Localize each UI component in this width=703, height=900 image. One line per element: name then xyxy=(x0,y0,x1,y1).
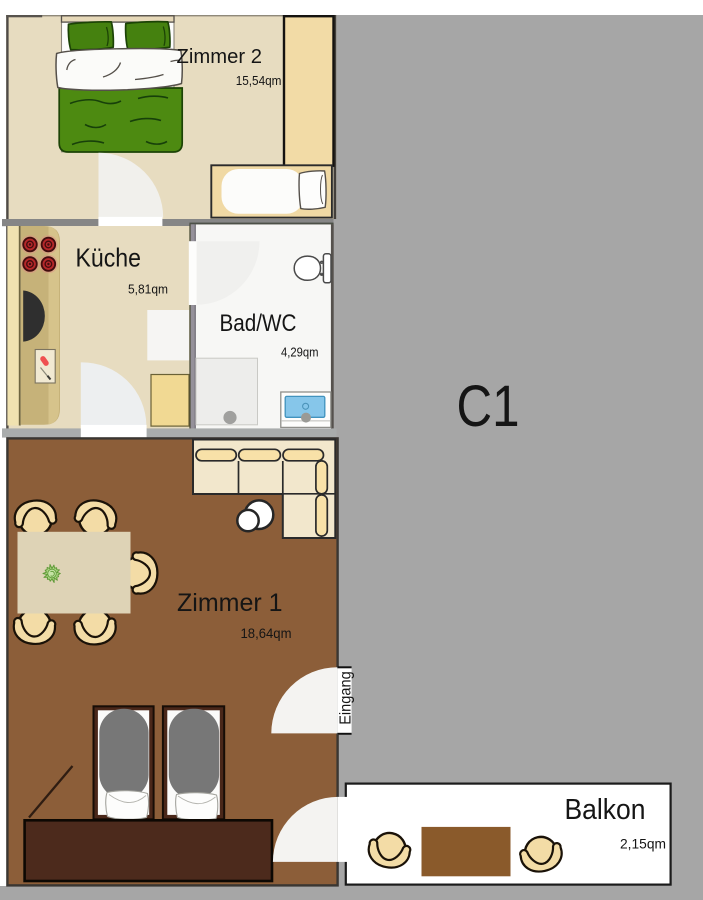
svg-text:18,64qm: 18,64qm xyxy=(241,625,292,641)
svg-text:Zimmer 1: Zimmer 1 xyxy=(177,589,283,617)
svg-text:Küche: Küche xyxy=(76,243,142,273)
svg-text:4,29qm: 4,29qm xyxy=(281,345,319,360)
svg-text:Zimmer 2: Zimmer 2 xyxy=(177,46,263,68)
svg-text:15,54qm: 15,54qm xyxy=(236,73,282,88)
svg-text:Bad/WC: Bad/WC xyxy=(220,310,297,337)
svg-text:C1: C1 xyxy=(457,374,520,439)
svg-text:5,81qm: 5,81qm xyxy=(128,282,168,297)
svg-text:2,15qm: 2,15qm xyxy=(620,836,666,852)
svg-text:Balkon: Balkon xyxy=(565,794,646,826)
svg-text:Eingang: Eingang xyxy=(337,671,354,725)
